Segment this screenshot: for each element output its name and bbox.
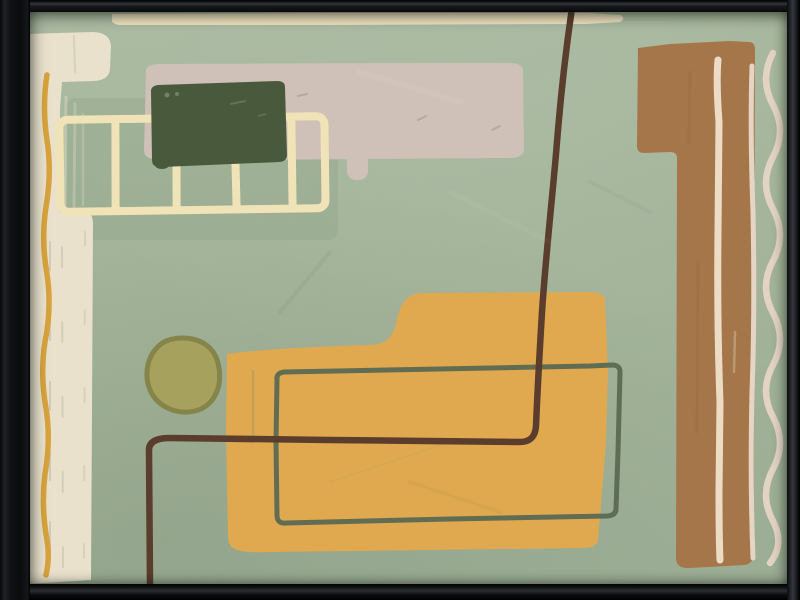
top-strip	[112, 13, 623, 25]
forest-rect	[151, 81, 287, 167]
olive-pebble	[147, 338, 220, 412]
mustard-step-shape	[226, 292, 608, 552]
blush-wave-line	[766, 53, 780, 563]
forest-drip	[155, 161, 169, 169]
framed-artwork	[0, 0, 800, 600]
blush-edge-line	[751, 66, 754, 558]
painting	[30, 12, 787, 584]
painting-canvas	[30, 12, 787, 584]
frame-bottom-rail	[0, 584, 800, 600]
sienna-column	[637, 41, 755, 568]
frame-top-rail	[0, 0, 800, 12]
taupe-drip	[347, 150, 368, 180]
frame-right-rail	[787, 0, 800, 600]
frame-left-rail	[0, 0, 30, 600]
blush-inner-line	[717, 60, 720, 560]
